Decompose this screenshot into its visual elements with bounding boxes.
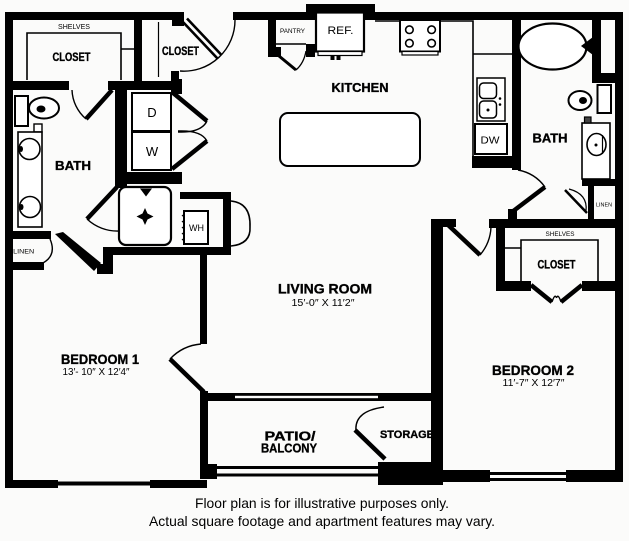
- svg-text:11′-7″ X 12′7″: 11′-7″ X 12′7″: [503, 378, 565, 389]
- svg-text:STORAGE: STORAGE: [380, 429, 434, 441]
- svg-text:LINEN: LINEN: [596, 203, 612, 209]
- svg-text:PANTRY: PANTRY: [280, 28, 306, 35]
- svg-text:BEDROOM 2: BEDROOM 2: [492, 362, 574, 378]
- svg-text:LINEN: LINEN: [13, 250, 34, 256]
- svg-text:13′- 10″ X 12′4″: 13′- 10″ X 12′4″: [63, 367, 130, 378]
- svg-text:15′-0″ X 11′2″: 15′-0″ X 11′2″: [292, 298, 355, 309]
- svg-text:KITCHEN: KITCHEN: [332, 80, 389, 95]
- svg-text:CLOSET: CLOSET: [538, 258, 577, 272]
- svg-text:REF.: REF.: [328, 25, 354, 37]
- svg-text:Actual square footage and apar: Actual square footage and apartment feat…: [149, 513, 495, 529]
- svg-text:SHELVES: SHELVES: [58, 22, 90, 31]
- svg-text:WH: WH: [189, 223, 204, 233]
- svg-text:Floor plan is for illustrative: Floor plan is for illustrative purposes …: [195, 495, 449, 511]
- svg-text:W: W: [146, 144, 159, 159]
- svg-text:SHELVES: SHELVES: [546, 231, 576, 238]
- svg-text:BATH: BATH: [533, 131, 568, 146]
- svg-text:D: D: [147, 105, 156, 120]
- svg-text:BATH: BATH: [55, 158, 91, 173]
- svg-text:CLOSET: CLOSET: [162, 44, 200, 58]
- svg-text:DW: DW: [481, 136, 501, 147]
- svg-text:BALCONY: BALCONY: [261, 441, 317, 456]
- svg-text:LIVING ROOM: LIVING ROOM: [278, 281, 372, 297]
- svg-text:BEDROOM 1: BEDROOM 1: [61, 351, 139, 367]
- svg-text:CLOSET: CLOSET: [53, 50, 92, 64]
